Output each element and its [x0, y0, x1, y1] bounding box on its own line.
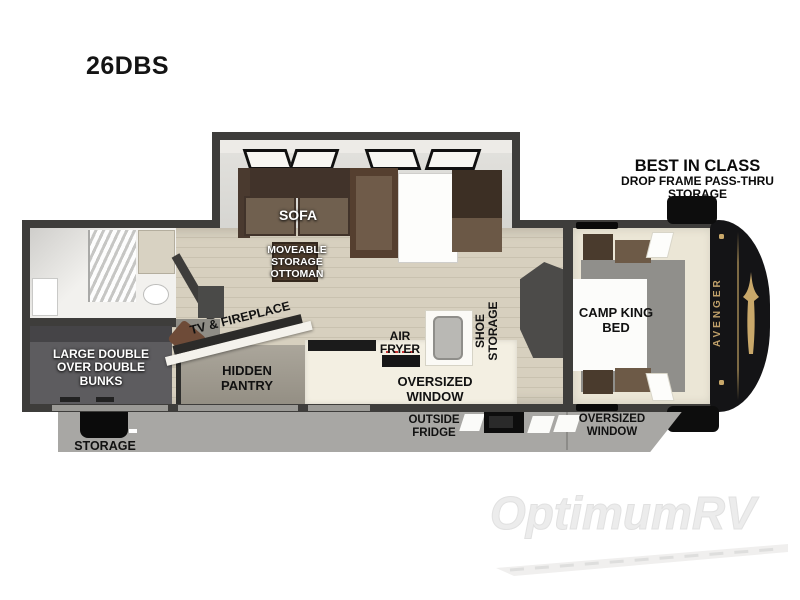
kitchen-wall-window-icon	[308, 405, 370, 411]
camp-king-bed-label: CAMP KING BED	[574, 306, 658, 335]
slide-window-icon	[289, 149, 340, 170]
air-fryer-label: AIR FRYER	[372, 330, 428, 357]
marker-light-icon	[719, 234, 724, 239]
dinette-table	[399, 174, 457, 262]
hidden-pantry-label: HIDDEN PANTRY	[203, 364, 291, 393]
rear-wall-window-icon	[52, 405, 168, 411]
shoe-storage-label: SHOE STORAGE	[456, 295, 518, 367]
sofa-label: SOFA	[268, 208, 328, 224]
toilet-icon	[144, 285, 168, 304]
bunk-wall-mark	[96, 397, 114, 402]
entertainment-wardrobe	[452, 170, 502, 218]
bedroom-window-icon	[576, 404, 618, 411]
bedroom-wall	[563, 220, 573, 412]
oversized-window-kitchen-label: OVERSIZED WINDOW	[385, 375, 485, 404]
bunks-label: LARGE DOUBLE OVER DOUBLE BUNKS	[36, 348, 166, 388]
bunk-wall-mark	[60, 397, 80, 402]
watermark-road-icon	[496, 542, 788, 576]
outside-fridge-door	[489, 416, 513, 428]
marker-light-icon	[719, 380, 724, 385]
shower-icon	[88, 230, 136, 302]
nightstand	[615, 240, 651, 263]
cooktop-icon	[308, 340, 376, 351]
bathroom-vanity	[32, 278, 58, 316]
bedroom-wardrobe	[583, 370, 613, 394]
nightstand	[615, 368, 651, 392]
slide-window-icon	[365, 149, 422, 170]
storage-label: STORAGE	[70, 439, 140, 453]
bedroom-wardrobe	[583, 234, 613, 260]
bathroom-cabinet	[138, 230, 175, 274]
watermark: OptimumRV	[490, 486, 800, 576]
storage-door-handle	[129, 429, 137, 433]
floorplan-page: 26DBS BEST IN CLASS DROP FRAME PASS-THRU…	[0, 0, 800, 600]
ottoman-label: MOVEABLE STORAGE OTTOMAN	[255, 245, 339, 280]
front-cap-seam	[737, 232, 739, 400]
door-side-wall-window-icon	[178, 405, 298, 411]
bedroom-window-icon	[576, 222, 618, 229]
brand-eagle-icon	[742, 272, 760, 354]
bunk-bed-top	[30, 326, 172, 342]
slide-window-icon	[425, 149, 482, 170]
best-in-class-callout: BEST IN CLASS DROP FRAME PASS-THRU STORA…	[600, 158, 795, 201]
oversized-window-bedroom-label: OVERSIZED WINDOW	[572, 413, 652, 439]
outside-fridge-label: OUTSIDE FRIDGE	[398, 414, 470, 440]
exterior-storage-door	[80, 412, 128, 438]
callout-line1: BEST IN CLASS	[600, 158, 795, 175]
pass-thru-storage-door	[667, 196, 717, 224]
entertainment-wardrobe-front	[452, 218, 502, 252]
sofa-chaise-cushion	[356, 176, 392, 250]
slide-window-icon	[243, 149, 294, 170]
sofa-back	[238, 168, 354, 198]
model-number-label: 26DBS	[86, 52, 169, 81]
watermark-text: OptimumRV	[490, 486, 800, 540]
entry-door	[198, 286, 224, 318]
brand-wordmark: AVENGER	[712, 250, 728, 374]
